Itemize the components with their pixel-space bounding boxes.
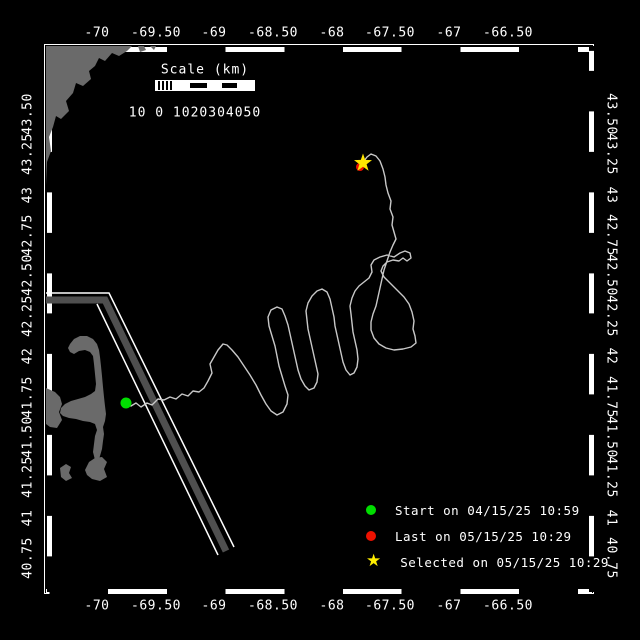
axis-label: 43.50 <box>21 93 36 135</box>
axis-label: 43.50 <box>604 93 619 135</box>
axis-label: 41.50 <box>21 416 36 458</box>
shipping-lane <box>46 293 234 555</box>
axis-label: 43.25 <box>21 133 36 175</box>
track-map-window: -70-70-69.50-69.50-69-69-68.50-68.50-68-… <box>0 0 640 640</box>
start-dot-icon <box>366 505 376 515</box>
axis-label: 43.25 <box>604 133 619 175</box>
axis-label: 41.75 <box>21 376 36 418</box>
scale-seg <box>207 81 222 90</box>
drifter-track <box>126 154 416 415</box>
scale-seg-hatch <box>156 81 174 90</box>
legend-start: Start on 04/15/25 10:59 <box>366 502 580 518</box>
axis-label: 43 <box>604 187 619 204</box>
axis-label: -68 <box>320 599 345 614</box>
axis-label: -68.50 <box>248 599 298 614</box>
axis-label: 41.75 <box>604 376 619 418</box>
axis-label: -67 <box>437 599 462 614</box>
map-canvas[interactable] <box>0 0 640 640</box>
axis-label: -68 <box>320 26 345 41</box>
axis-label: -66.50 <box>483 26 533 41</box>
selected-star-icon: ★ <box>366 556 381 566</box>
scale-seg <box>190 81 207 90</box>
axis-label: 41 <box>604 510 619 527</box>
scale-seg <box>174 81 190 90</box>
axis-label: -66.50 <box>483 599 533 614</box>
axis-label: -70 <box>85 26 110 41</box>
scale-bar <box>155 80 255 91</box>
axis-label: 41 <box>21 510 36 527</box>
axis-label: -69 <box>202 26 227 41</box>
axis-label: 42 <box>21 348 36 365</box>
legend-last-label: Last on 05/15/25 10:29 <box>395 529 572 544</box>
axis-label: -67.50 <box>365 26 415 41</box>
axis-label: -69 <box>202 599 227 614</box>
axis-label: 42.75 <box>604 214 619 256</box>
axis-label: 41.25 <box>604 456 619 498</box>
axis-label: 42.50 <box>21 254 36 296</box>
axis-label: 42.25 <box>604 295 619 337</box>
axis-label: 42 <box>604 348 619 365</box>
scale-title: Scale (km) <box>161 63 249 78</box>
axis-label: -67.50 <box>365 599 415 614</box>
axis-label: -69.50 <box>131 599 181 614</box>
axis-label: -70 <box>85 599 110 614</box>
axis-label: 43 <box>21 187 36 204</box>
scale-numbers: 10 0 1020304050 <box>129 106 261 121</box>
axis-label: 42.75 <box>21 214 36 256</box>
axis-label: -69.50 <box>131 26 181 41</box>
legend-selected: ★ Selected on 05/15/25 10:29 <box>366 554 609 570</box>
legend-last: Last on 05/15/25 10:29 <box>366 528 572 544</box>
scale-seg <box>237 81 254 90</box>
start-position-dot[interactable] <box>121 398 132 409</box>
axis-label: 40.75 <box>21 537 36 579</box>
legend-start-label: Start on 04/15/25 10:59 <box>395 503 580 518</box>
legend-selected-label: Selected on 05/15/25 10:29 <box>400 555 609 570</box>
scale-seg <box>222 81 237 90</box>
last-dot-icon <box>366 531 376 541</box>
axis-label: 41.25 <box>21 456 36 498</box>
axis-label: 42.50 <box>604 254 619 296</box>
axis-label: 41.50 <box>604 416 619 458</box>
axis-label: -67 <box>437 26 462 41</box>
axis-label: 42.25 <box>21 295 36 337</box>
axis-label: -68.50 <box>248 26 298 41</box>
